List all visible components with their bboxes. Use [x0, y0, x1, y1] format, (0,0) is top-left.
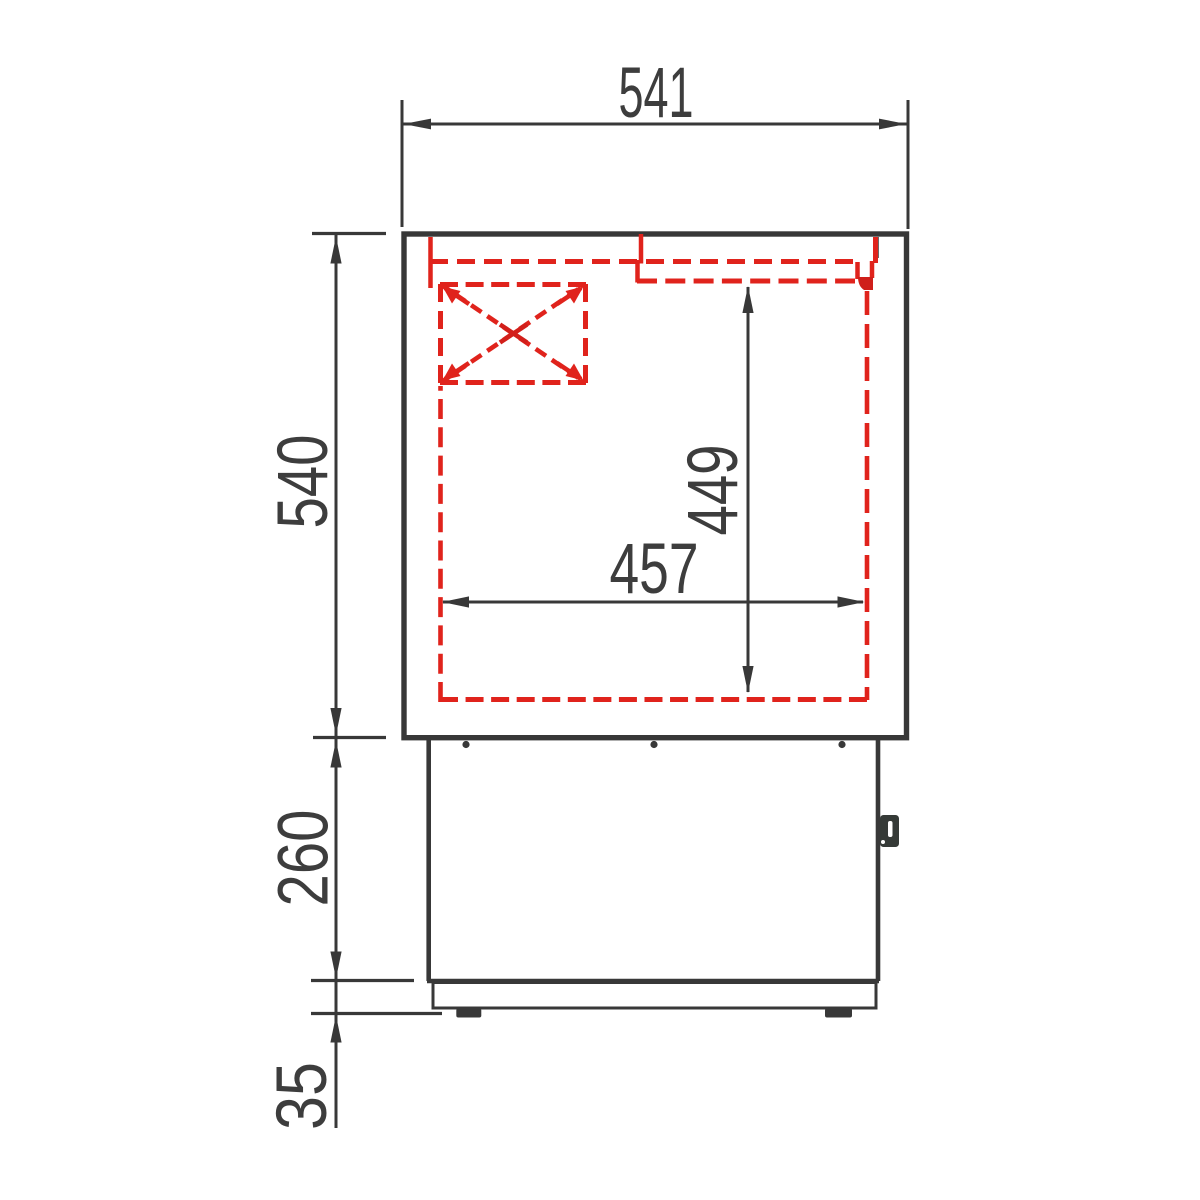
svg-text:457: 457 [610, 530, 699, 609]
svg-text:540: 540 [264, 435, 343, 529]
svg-text:541: 541 [619, 54, 694, 133]
svg-text:449: 449 [674, 445, 753, 536]
svg-text:260: 260 [265, 810, 344, 907]
svg-text:35: 35 [263, 1062, 342, 1130]
